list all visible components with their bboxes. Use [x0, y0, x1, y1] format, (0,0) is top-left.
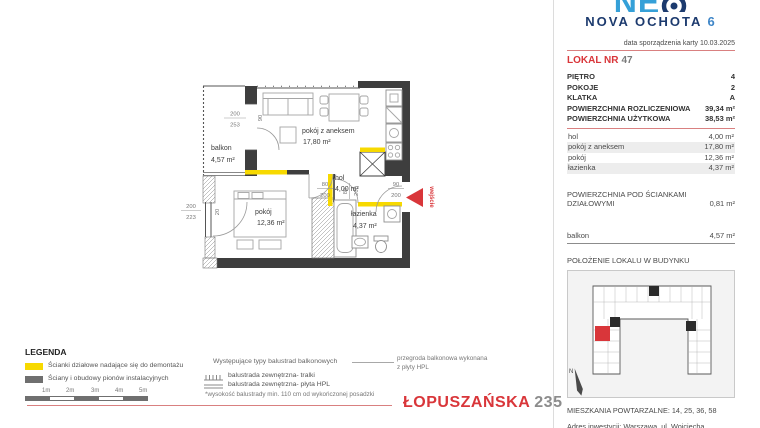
svg-text:17,80 m²: 17,80 m² [303, 139, 331, 146]
detail-row: POWIERZCHNIA UŻYTKOWA38,53 m² [567, 114, 735, 125]
project-name: NOVA OCHOTA 6 [567, 14, 735, 29]
balustrade-item-hpl: balustrada zewnętrzna- płyta HPL [228, 381, 330, 388]
separator-line [567, 50, 735, 51]
svg-text:200: 200 [354, 186, 360, 196]
detail-row: POKOJE2 [567, 83, 735, 94]
detail-row: KLATKAA [567, 93, 735, 104]
svg-text:200: 200 [391, 193, 401, 199]
stairwell-block [610, 317, 620, 327]
apartment-card-page: balkon 4,57 m² [0, 0, 760, 428]
wardrobe-shaft [312, 198, 334, 258]
tralki-symbol-icon [204, 374, 223, 381]
dining-table [329, 94, 359, 121]
svg-text:4,57 m²: 4,57 m² [211, 157, 235, 164]
svg-text:200: 200 [186, 204, 196, 210]
yellow-swatch-icon [25, 363, 43, 370]
svg-text:200: 200 [320, 193, 330, 199]
gray-swatch-icon [25, 376, 43, 383]
entrance-arrow-icon [406, 188, 423, 207]
card-date: data sporządzenia karty 10.03.2025 [567, 40, 735, 47]
svg-text:N: N [569, 369, 573, 375]
street-name: ŁOPUSZAŃSKA235 [403, 394, 562, 412]
balustrade-note: *wysokość balustrady min. 110 cm od wyko… [205, 391, 374, 398]
entrance-label: wejście [428, 185, 434, 208]
balustrade-item-tralki: balustrada zewnętrzna- tralki [228, 372, 315, 379]
separator-line [567, 128, 735, 129]
svg-text:200: 200 [230, 112, 240, 118]
hpl-symbol-icon [204, 383, 223, 390]
neo-logo-ring-icon [660, 0, 688, 12]
svg-text:4,37 m²: 4,37 m² [353, 223, 377, 230]
unit-number-heading: LOKAL NR47 [567, 55, 735, 66]
north-arrow-icon: N [569, 368, 584, 397]
room-row: hol4,00 m² [567, 132, 735, 143]
kitchen-fixtures [386, 90, 402, 160]
room-list: hol4,00 m² pokój z aneksem17,80 m² pokój… [567, 132, 735, 174]
partition-area-row: POWIERZCHNIA POD ŚCIANKAMI DZIAŁOWYMI 0,… [567, 190, 735, 208]
detail-row: POWIERZCHNIA ROZLICZENIOWA39,34 m² [567, 104, 735, 115]
dim-entry-door: 90 200 [388, 182, 404, 199]
room-row: pokój z aneksem17,80 m² [567, 142, 735, 153]
bath-label: łazienka [351, 211, 377, 218]
svg-text:90: 90 [258, 115, 264, 121]
stairwell-block [649, 286, 659, 296]
dim-bedroom-window: 200 223 [181, 204, 201, 221]
detail-row: PIĘTRO4 [567, 72, 735, 83]
neo-logo-letters: NE [614, 0, 660, 12]
legend-item-shaft-walls: Ściany i obudowy pionów instalacyjnych [48, 375, 169, 382]
balustrade-title: Występujące typy balustrad balkonowych [213, 358, 337, 365]
hpl-note-line2: z płyty HPL [397, 364, 429, 371]
location-header: POŁOŻENIE LOKALU W BUDYNKU [567, 256, 735, 265]
svg-text:253: 253 [230, 123, 240, 129]
balcony-door-arc [257, 128, 279, 150]
building-location-diagram: N [567, 270, 735, 398]
bedroom-window [206, 202, 248, 237]
floor-plan: balkon 4,57 m² [175, 60, 455, 275]
scale-bar: 1m 2m 3m 4m 5m [25, 388, 148, 401]
room-row: pokój12,36 m² [567, 153, 735, 164]
balcony-label: balkon [211, 145, 232, 152]
bedroom-label: pokój [255, 209, 272, 216]
legend-item-demountable: Ścianki działowe nadające się do demonta… [48, 362, 183, 369]
svg-text:90: 90 [393, 182, 399, 188]
legend-title: LEGENDA [25, 347, 67, 357]
svg-text:80: 80 [322, 182, 328, 188]
room-row: łazienka4,37 m² [567, 163, 735, 174]
unit-details: PIĘTRO4 POKOJE2 KLATKAA POWIERZCHNIA ROZ… [567, 72, 735, 125]
panel-divider [553, 0, 554, 428]
living-label: pokój z aneksem [302, 128, 355, 135]
balcony-area-row: balkon4,57 m² [567, 231, 735, 244]
hpl-leader-line [352, 362, 394, 363]
stairwell-block [686, 321, 696, 331]
shaft-walls [203, 152, 385, 268]
highlighted-unit [595, 326, 610, 341]
hob [386, 143, 402, 160]
svg-text:223: 223 [186, 215, 196, 221]
investment-address-line: Adres inwestycji: Warszawa, ul. Wojciech… [567, 422, 735, 428]
info-panel: NE NOVA OCHOTA 6 data sporządzenia karty… [567, 0, 735, 428]
repeatable-units-line: MIESZKANIA POWTARZALNE: 14, 25, 36, 58 [567, 406, 735, 415]
svg-text:12,36 m²: 12,36 m² [257, 220, 285, 227]
washing-machine [384, 206, 400, 222]
footer-red-line [27, 405, 392, 406]
svg-text:20: 20 [215, 209, 221, 215]
dim-balcony-door: 200 253 [224, 112, 246, 129]
hpl-note-line1: przegroda balkonowa wykonana [397, 355, 487, 362]
living-furniture [263, 93, 368, 143]
hol-label: hol [335, 175, 345, 182]
svg-text:80: 80 [343, 188, 349, 194]
neo-logo: NE [567, 0, 735, 12]
balcony-area: balkon 4,57 m² [203, 86, 245, 176]
